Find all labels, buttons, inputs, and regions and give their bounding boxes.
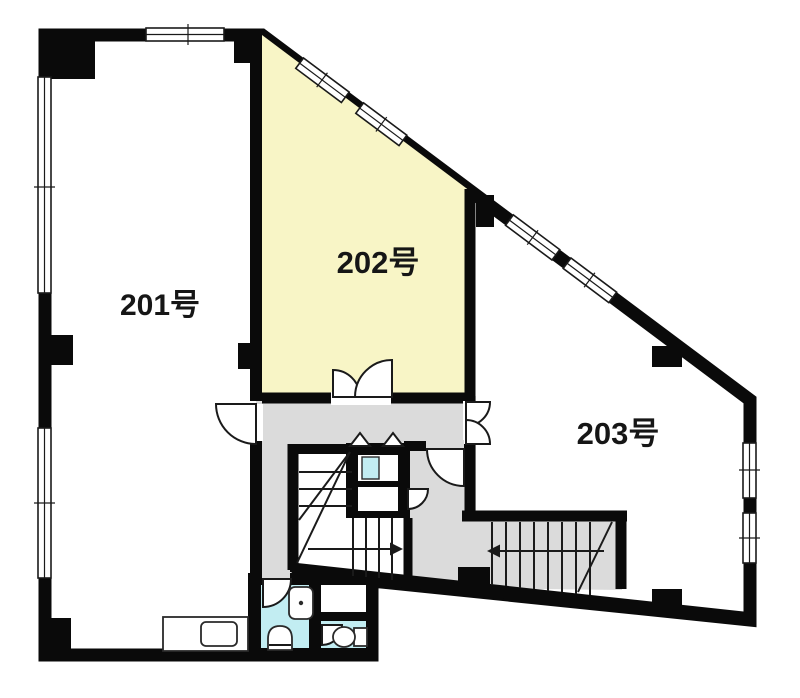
floorplan-canvas: 201号 202号 203号: [0, 0, 800, 698]
window-left-lower: [34, 428, 55, 578]
room-201-label: 201号: [120, 289, 200, 322]
window-right-lower: [739, 513, 760, 563]
pillar-201-right-wall: [238, 343, 252, 369]
toilet1-basin: [289, 587, 313, 619]
pillar-202-right: [476, 195, 494, 227]
window-top: [146, 24, 224, 45]
toilet-upper-room: [321, 585, 366, 612]
toilet1-bowl: [268, 626, 292, 650]
pillar-203-top: [652, 346, 682, 367]
pillar-left-wall: [51, 335, 73, 365]
toilet2-bowl: [333, 627, 367, 647]
pillar-top-left: [45, 35, 95, 79]
door-203-bottom-leaf: [466, 420, 490, 444]
room-203-label: 203号: [577, 416, 660, 451]
room-202-area: [262, 35, 470, 398]
window-right-upper: [739, 443, 760, 498]
pillar-hall-bottom: [458, 567, 490, 592]
room-202-label: 202号: [337, 245, 420, 280]
door-201: [216, 404, 256, 444]
closet-room: [358, 487, 398, 511]
pillar-203-bottom: [652, 589, 682, 610]
wash-basin: [362, 457, 379, 479]
pillar-bottom-left: [45, 618, 71, 657]
pillar-201-top-right: [234, 41, 260, 63]
window-left-upper: [34, 77, 55, 293]
floorplan-svg: 201号 202号 203号: [0, 0, 800, 698]
kitchen-counter: [163, 617, 248, 651]
